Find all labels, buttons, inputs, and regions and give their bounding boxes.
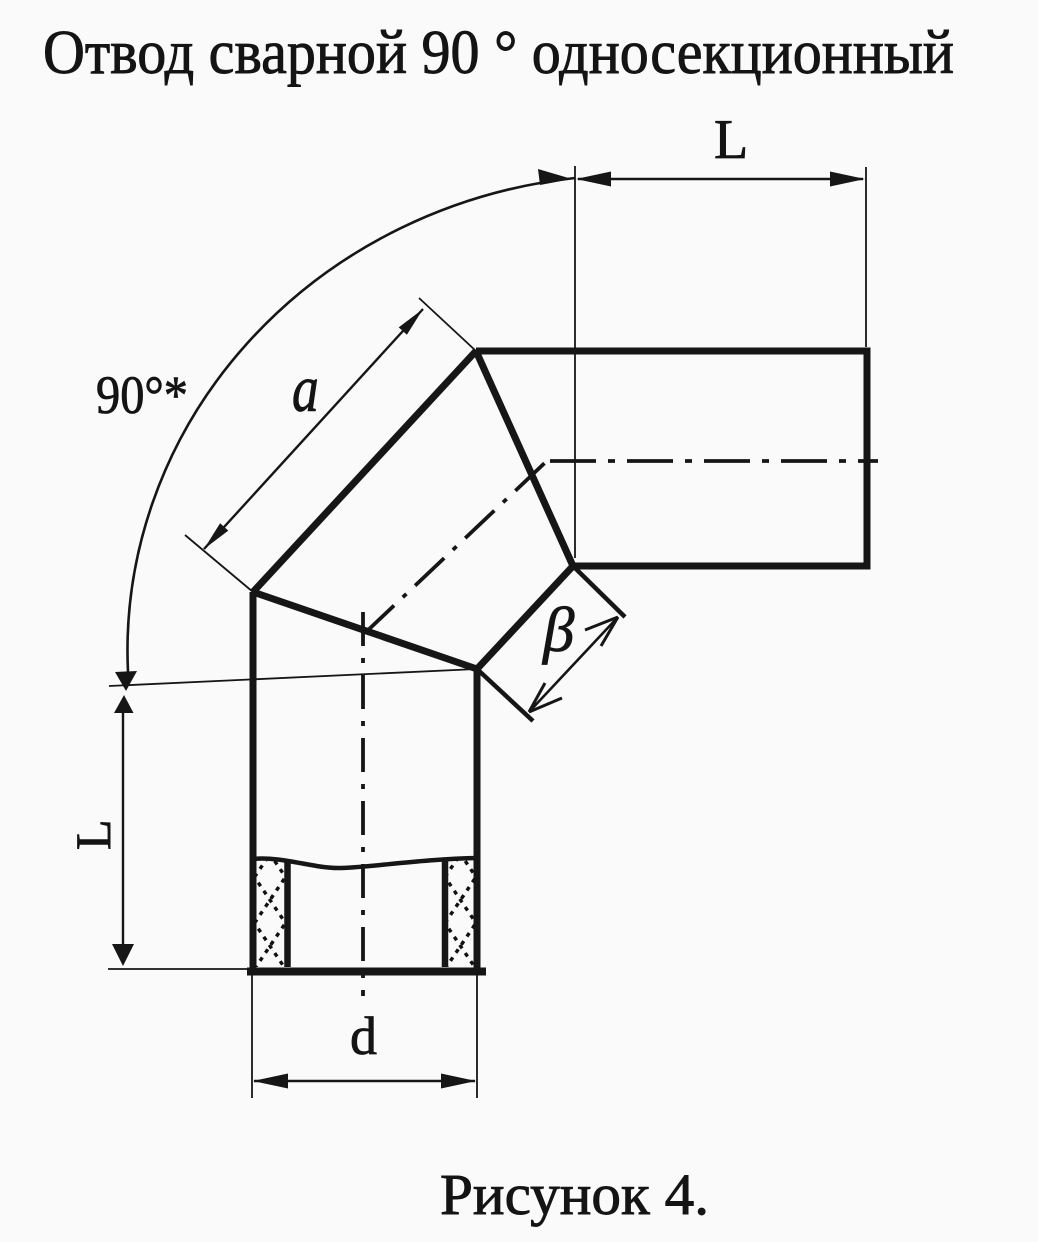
svg-text:L: L — [714, 109, 748, 171]
svg-text:L: L — [65, 819, 121, 850]
svg-text:d: d — [350, 1006, 377, 1066]
svg-text:Рисунок 4.: Рисунок 4. — [440, 1162, 709, 1227]
svg-text:90°*: 90°* — [96, 365, 188, 425]
svg-text:Отвод сварной 90 ° односекцион: Отвод сварной 90 ° односекционный — [43, 19, 954, 87]
svg-text:a: a — [292, 352, 319, 426]
svg-text:β: β — [541, 595, 575, 665]
